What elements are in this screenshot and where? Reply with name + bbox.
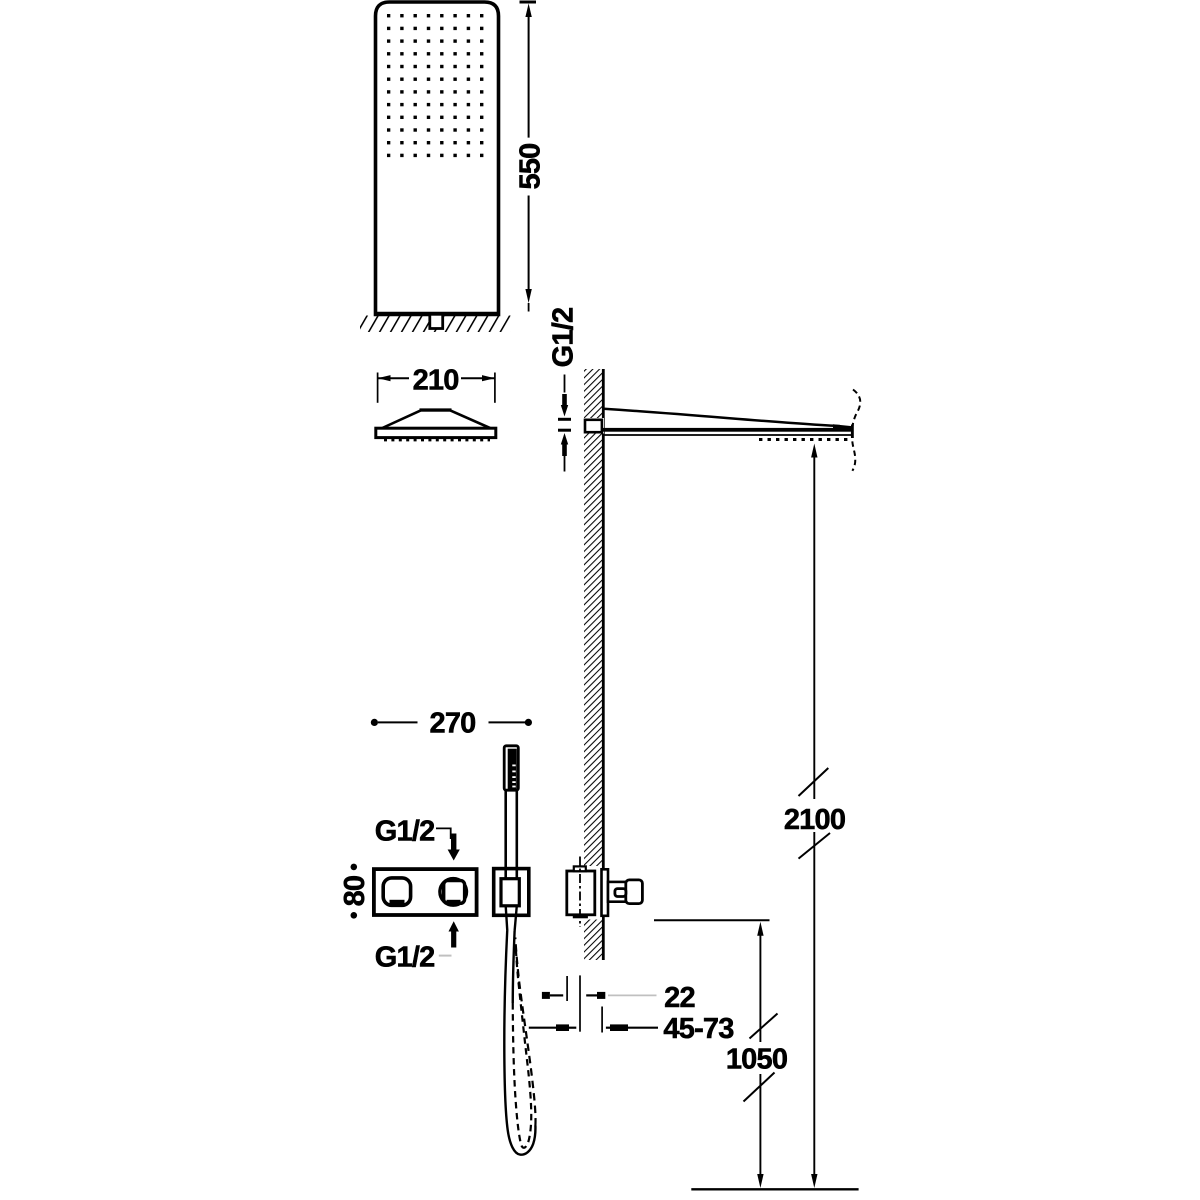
- svg-text:270: 270: [430, 708, 476, 740]
- svg-text:G1/2: G1/2: [375, 942, 435, 974]
- svg-text:210: 210: [413, 365, 459, 397]
- svg-text:2100: 2100: [784, 804, 845, 836]
- svg-text:80: 80: [339, 876, 371, 907]
- svg-text:G1/2: G1/2: [375, 815, 435, 847]
- svg-text:45-73: 45-73: [663, 1013, 734, 1045]
- svg-text:1050: 1050: [726, 1043, 787, 1075]
- svg-text:550: 550: [515, 144, 547, 190]
- svg-text:22: 22: [664, 982, 695, 1014]
- svg-text:G1/2: G1/2: [548, 308, 580, 368]
